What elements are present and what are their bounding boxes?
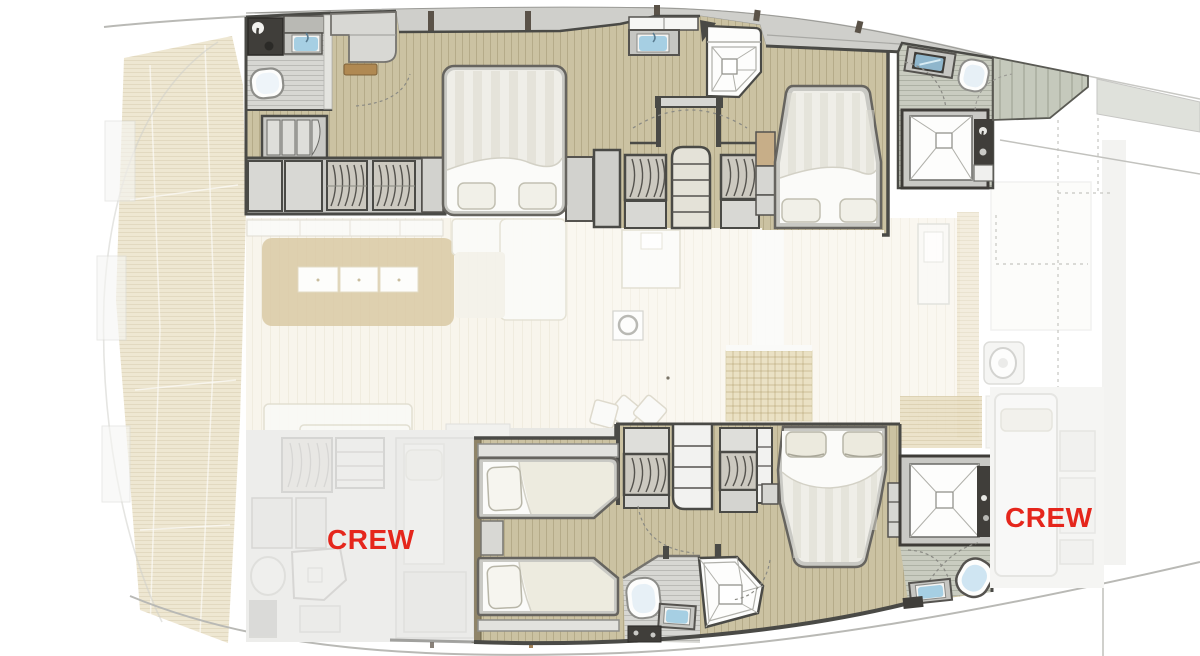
svg-text:CREW: CREW bbox=[1005, 502, 1093, 533]
svg-text:CREW: CREW bbox=[327, 524, 415, 555]
